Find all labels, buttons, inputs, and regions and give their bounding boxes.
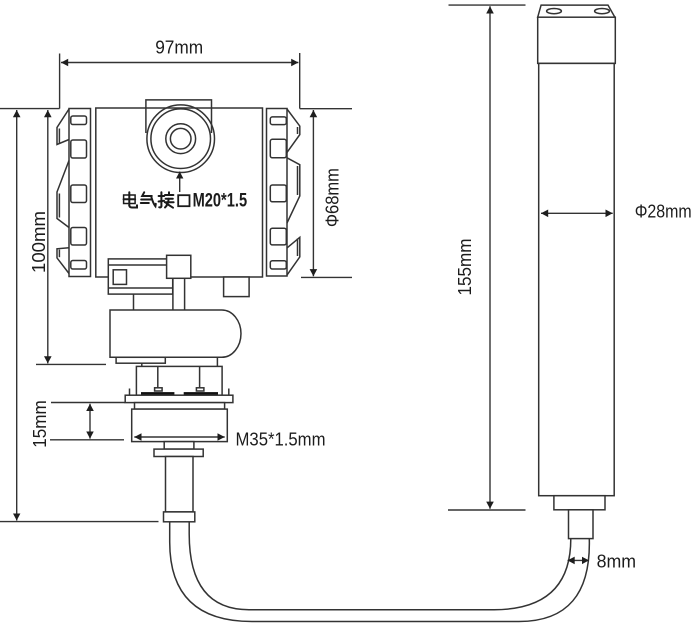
svg-text:M35*1.5mm: M35*1.5mm (236, 430, 326, 450)
svg-text:100mm: 100mm (29, 211, 49, 273)
svg-text:8mm: 8mm (597, 552, 637, 572)
svg-text:15mm: 15mm (30, 400, 50, 448)
svg-text:97mm: 97mm (155, 38, 203, 58)
svg-text:Φ68mm: Φ68mm (323, 168, 343, 227)
svg-text:155mm: 155mm (455, 239, 475, 296)
svg-text:Φ28mm: Φ28mm (635, 202, 692, 222)
svg-text:M20*1.5: M20*1.5 (193, 190, 248, 212)
